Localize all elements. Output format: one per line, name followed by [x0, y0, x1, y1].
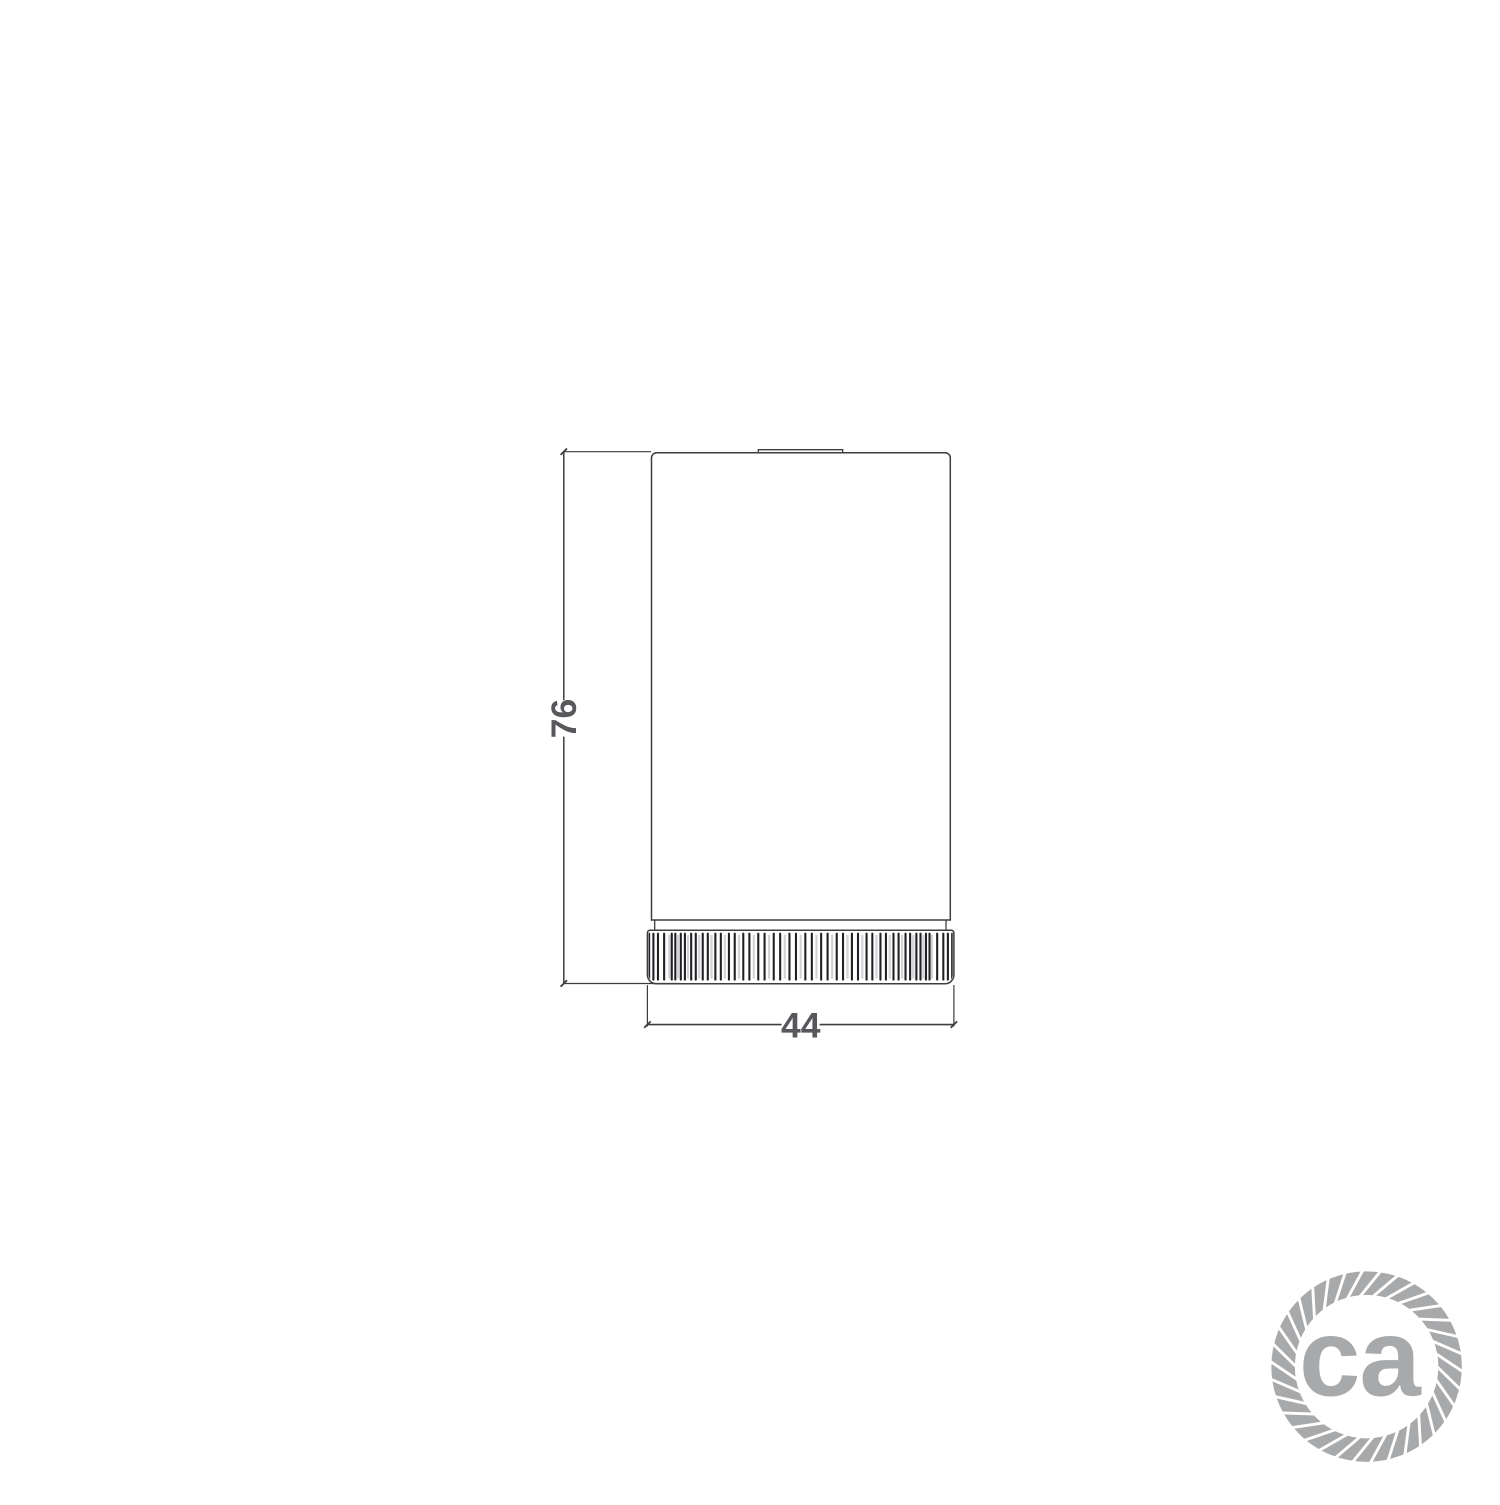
- svg-text:ca: ca: [1299, 1296, 1422, 1419]
- svg-text:44: 44: [781, 1005, 821, 1045]
- svg-text:76: 76: [544, 699, 584, 739]
